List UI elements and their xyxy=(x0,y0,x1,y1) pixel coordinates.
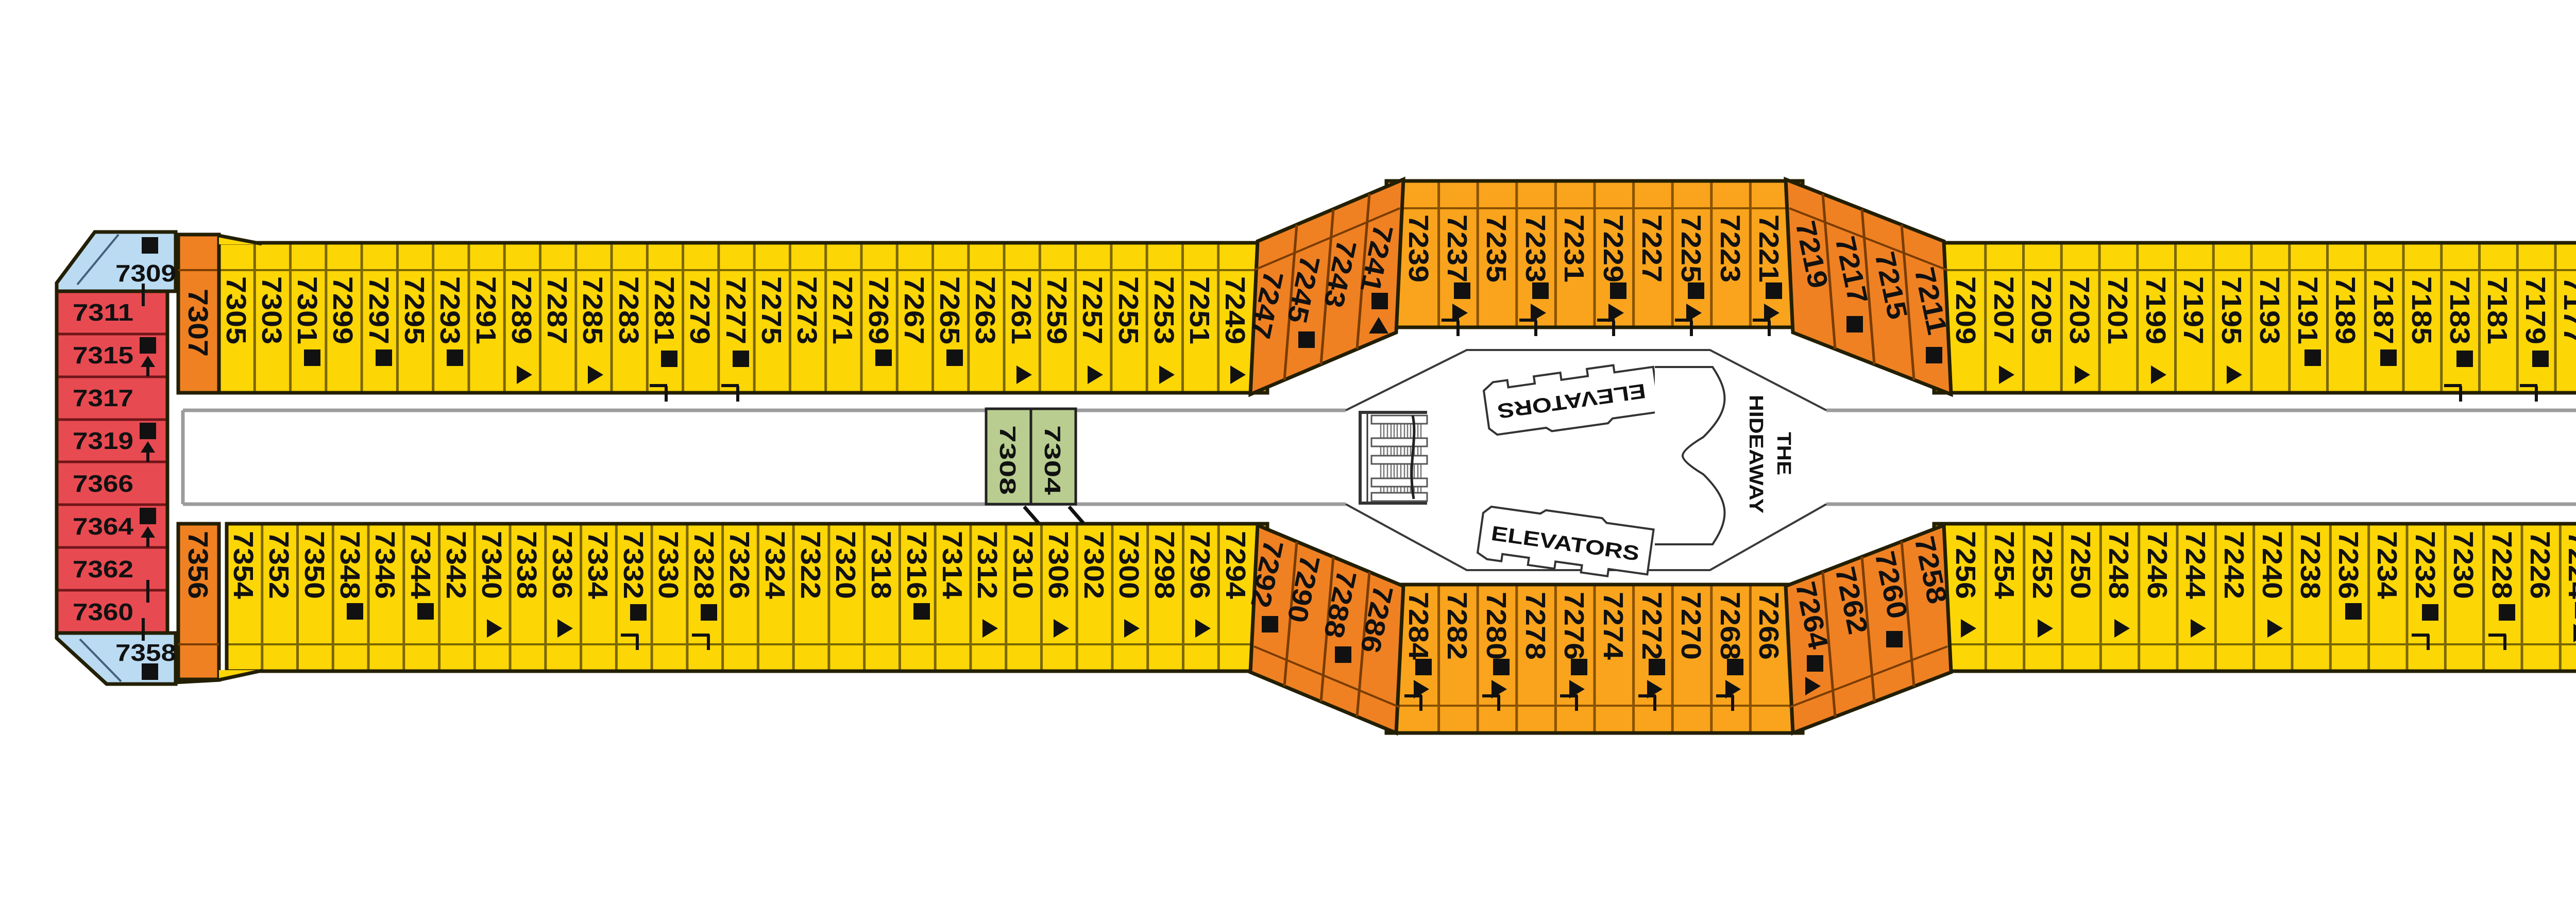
svg-text:7320: 7320 xyxy=(830,531,861,599)
svg-text:7246: 7246 xyxy=(2142,531,2173,599)
svg-text:7276: 7276 xyxy=(1558,592,1589,660)
svg-text:7332: 7332 xyxy=(618,531,649,599)
svg-text:7189: 7189 xyxy=(2330,276,2361,344)
svg-text:7299: 7299 xyxy=(327,276,358,344)
svg-text:HIDEAWAY: HIDEAWAY xyxy=(1745,395,1767,513)
svg-text:7312: 7312 xyxy=(972,531,1003,599)
svg-text:7298: 7298 xyxy=(1149,531,1180,599)
svg-text:7279: 7279 xyxy=(684,276,715,344)
svg-text:7354: 7354 xyxy=(228,531,259,599)
svg-text:7235: 7235 xyxy=(1481,214,1512,282)
svg-text:7251: 7251 xyxy=(1184,276,1215,344)
svg-text:7350: 7350 xyxy=(299,531,330,599)
svg-text:7342: 7342 xyxy=(440,531,471,599)
svg-text:7358: 7358 xyxy=(115,639,176,666)
svg-text:7346: 7346 xyxy=(369,531,400,599)
svg-text:7267: 7267 xyxy=(899,276,929,344)
svg-text:7281: 7281 xyxy=(649,276,680,344)
svg-text:7296: 7296 xyxy=(1184,531,1215,599)
svg-text:7209: 7209 xyxy=(1950,276,1981,344)
svg-text:7295: 7295 xyxy=(399,276,430,344)
svg-text:7289: 7289 xyxy=(506,276,537,344)
svg-text:7310: 7310 xyxy=(1007,531,1038,599)
svg-text:7203: 7203 xyxy=(2064,276,2095,344)
svg-text:7315: 7315 xyxy=(73,342,133,369)
svg-text:7232: 7232 xyxy=(2410,531,2441,599)
svg-text:7340: 7340 xyxy=(476,531,507,599)
svg-text:7237: 7237 xyxy=(1442,214,1472,282)
svg-text:7253: 7253 xyxy=(1148,276,1179,344)
svg-text:7277: 7277 xyxy=(720,276,751,344)
svg-text:7224: 7224 xyxy=(2563,531,2576,599)
svg-text:7239: 7239 xyxy=(1403,214,1434,282)
svg-text:7348: 7348 xyxy=(334,531,365,599)
svg-text:7177: 7177 xyxy=(2558,276,2576,344)
svg-text:7271: 7271 xyxy=(827,276,858,344)
svg-text:7273: 7273 xyxy=(791,276,822,344)
svg-text:7352: 7352 xyxy=(263,531,294,599)
svg-text:7257: 7257 xyxy=(1077,276,1108,344)
svg-text:7250: 7250 xyxy=(2065,531,2096,599)
svg-text:7360: 7360 xyxy=(73,598,133,625)
svg-text:7187: 7187 xyxy=(2368,276,2399,344)
svg-text:7293: 7293 xyxy=(434,276,465,344)
svg-text:7274: 7274 xyxy=(1598,592,1629,660)
svg-text:7280: 7280 xyxy=(1481,592,1512,660)
svg-text:7294: 7294 xyxy=(1220,531,1251,599)
svg-text:THE: THE xyxy=(1773,432,1794,475)
svg-text:7300: 7300 xyxy=(1113,531,1144,599)
svg-text:7230: 7230 xyxy=(2448,531,2479,599)
svg-text:7301: 7301 xyxy=(292,276,323,344)
svg-text:7234: 7234 xyxy=(2371,531,2402,599)
svg-text:7248: 7248 xyxy=(2103,531,2134,599)
svg-text:7199: 7199 xyxy=(2140,276,2171,344)
svg-text:7314: 7314 xyxy=(937,531,968,599)
svg-text:7304: 7304 xyxy=(1040,425,1065,495)
svg-text:7307: 7307 xyxy=(182,289,213,357)
svg-text:7266: 7266 xyxy=(1753,592,1784,660)
svg-text:7269: 7269 xyxy=(863,276,894,344)
svg-text:7308: 7308 xyxy=(995,425,1020,495)
svg-text:7244: 7244 xyxy=(2180,531,2211,599)
svg-text:7221: 7221 xyxy=(1753,214,1784,282)
svg-text:7316: 7316 xyxy=(901,531,932,599)
svg-text:7201: 7201 xyxy=(2102,276,2133,344)
svg-text:7226: 7226 xyxy=(2524,531,2555,599)
svg-text:7223: 7223 xyxy=(1715,214,1745,282)
svg-text:7181: 7181 xyxy=(2482,276,2513,344)
svg-text:7344: 7344 xyxy=(405,531,436,599)
svg-text:7287: 7287 xyxy=(541,276,572,344)
svg-text:7330: 7330 xyxy=(653,531,684,599)
svg-text:7261: 7261 xyxy=(1006,276,1037,344)
svg-text:7252: 7252 xyxy=(2027,531,2058,599)
svg-text:7322: 7322 xyxy=(795,531,826,599)
svg-text:7191: 7191 xyxy=(2292,276,2323,344)
svg-text:7297: 7297 xyxy=(363,276,394,344)
svg-text:7272: 7272 xyxy=(1636,592,1667,660)
svg-text:7284: 7284 xyxy=(1403,592,1434,660)
svg-text:7256: 7256 xyxy=(1950,531,1981,599)
svg-text:7306: 7306 xyxy=(1043,531,1074,599)
svg-text:7197: 7197 xyxy=(2178,276,2209,344)
svg-text:7283: 7283 xyxy=(613,276,644,344)
svg-text:7265: 7265 xyxy=(934,276,965,344)
svg-text:7238: 7238 xyxy=(2295,531,2326,599)
svg-text:7195: 7195 xyxy=(2216,276,2247,344)
svg-text:7179: 7179 xyxy=(2520,276,2551,344)
svg-text:7205: 7205 xyxy=(2026,276,2057,344)
svg-text:7366: 7366 xyxy=(73,470,133,497)
svg-text:7334: 7334 xyxy=(582,531,613,599)
svg-text:7285: 7285 xyxy=(577,276,608,344)
svg-text:7270: 7270 xyxy=(1675,592,1706,660)
svg-text:7326: 7326 xyxy=(724,531,755,599)
svg-text:7268: 7268 xyxy=(1715,592,1745,660)
svg-text:7254: 7254 xyxy=(1989,531,2020,599)
svg-text:7275: 7275 xyxy=(756,276,787,344)
svg-text:7328: 7328 xyxy=(688,531,719,599)
svg-text:7259: 7259 xyxy=(1041,276,1072,344)
svg-text:7231: 7231 xyxy=(1558,214,1589,282)
svg-text:7240: 7240 xyxy=(2257,531,2287,599)
svg-text:7225: 7225 xyxy=(1675,214,1706,282)
svg-text:7183: 7183 xyxy=(2444,276,2475,344)
svg-text:7317: 7317 xyxy=(73,385,133,411)
svg-text:7324: 7324 xyxy=(759,531,790,599)
svg-text:7228: 7228 xyxy=(2486,531,2517,599)
svg-text:7305: 7305 xyxy=(221,276,251,344)
svg-text:7193: 7193 xyxy=(2254,276,2285,344)
svg-text:7319: 7319 xyxy=(73,427,133,454)
svg-text:7207: 7207 xyxy=(1988,276,2019,344)
svg-text:7255: 7255 xyxy=(1113,276,1144,344)
svg-text:7309: 7309 xyxy=(115,260,176,287)
svg-text:7229: 7229 xyxy=(1598,214,1629,282)
svg-text:7318: 7318 xyxy=(866,531,896,599)
svg-text:7336: 7336 xyxy=(547,531,578,599)
svg-text:7338: 7338 xyxy=(511,531,542,599)
svg-text:7356: 7356 xyxy=(182,531,213,599)
svg-text:7303: 7303 xyxy=(256,276,287,344)
svg-text:7236: 7236 xyxy=(2333,531,2364,599)
svg-text:7185: 7185 xyxy=(2406,276,2437,344)
svg-text:7278: 7278 xyxy=(1520,592,1551,660)
svg-text:7242: 7242 xyxy=(2218,531,2249,599)
svg-text:7364: 7364 xyxy=(73,513,133,540)
svg-text:7291: 7291 xyxy=(470,276,501,344)
svg-text:7362: 7362 xyxy=(73,556,133,582)
svg-text:7282: 7282 xyxy=(1442,592,1472,660)
svg-text:7302: 7302 xyxy=(1078,531,1109,599)
svg-text:7233: 7233 xyxy=(1520,214,1551,282)
svg-text:7263: 7263 xyxy=(970,276,1001,344)
svg-text:7227: 7227 xyxy=(1636,214,1667,282)
svg-text:7311: 7311 xyxy=(73,299,133,326)
